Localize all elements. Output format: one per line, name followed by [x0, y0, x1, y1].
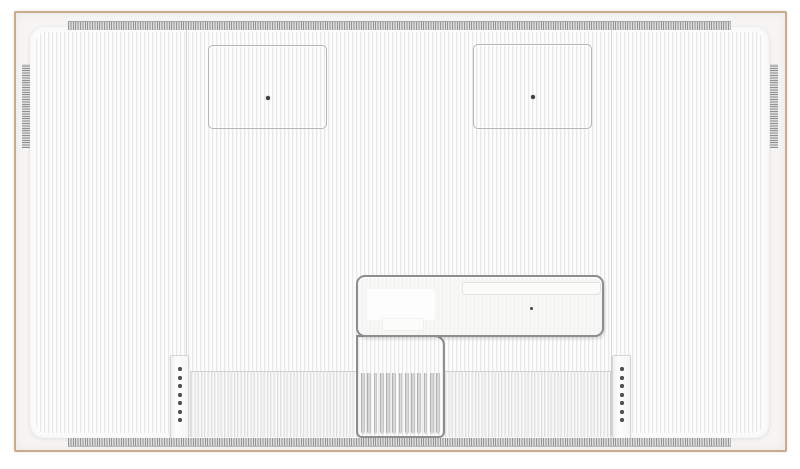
left-vent-strip	[22, 64, 30, 148]
screw-hole-icon	[178, 393, 182, 397]
info-label-area	[367, 289, 435, 320]
screw-hole-icon	[178, 401, 182, 405]
heatsink-fin	[411, 373, 415, 433]
heatsink-fin	[430, 373, 434, 433]
screw-hole-icon	[178, 384, 182, 388]
screw-hole-icon	[620, 376, 624, 380]
screw-hole-icon	[620, 410, 624, 414]
vesa-mount-right	[473, 44, 592, 129]
heatsink-fin	[374, 373, 378, 433]
screw-hole-icon	[178, 376, 182, 380]
label-tab	[382, 318, 424, 331]
mount-rail-right	[612, 355, 631, 439]
heatsink-fin	[436, 373, 440, 433]
screw-hole-icon	[620, 401, 624, 405]
heatsink-fin	[380, 373, 384, 433]
connection-recess	[356, 275, 604, 337]
screw-hole-icon	[620, 384, 624, 388]
mount-rail-left	[170, 355, 189, 439]
screw-hole-icon	[620, 418, 624, 422]
screw-hole-icon	[620, 393, 624, 397]
heatsink-fin	[361, 373, 365, 433]
heatsink-fin	[399, 373, 403, 433]
heatsink-fin	[386, 373, 390, 433]
screw-hole-icon	[266, 96, 270, 100]
heatsink-fin	[405, 373, 409, 433]
heatsink-fin	[417, 373, 421, 433]
bottom-vent-strip	[68, 438, 731, 447]
screw-hole-icon	[178, 410, 182, 414]
screw-hole-icon	[178, 367, 182, 371]
heatsink-fins	[361, 373, 440, 433]
top-vent-strip	[68, 21, 731, 30]
heatsink-fin	[392, 373, 396, 433]
heatsink-fin	[424, 373, 428, 433]
screw-hole-icon	[178, 418, 182, 422]
tv-back-view	[0, 0, 800, 469]
connector-cover-strip	[462, 282, 601, 295]
screw-hole-icon	[620, 367, 624, 371]
screw-hole-icon	[531, 95, 535, 99]
right-vent-strip	[770, 64, 778, 148]
heatsink-fin	[367, 373, 371, 433]
recess-extension	[356, 335, 445, 438]
vesa-mount-left	[208, 45, 327, 129]
screw-hole-icon	[530, 307, 533, 310]
